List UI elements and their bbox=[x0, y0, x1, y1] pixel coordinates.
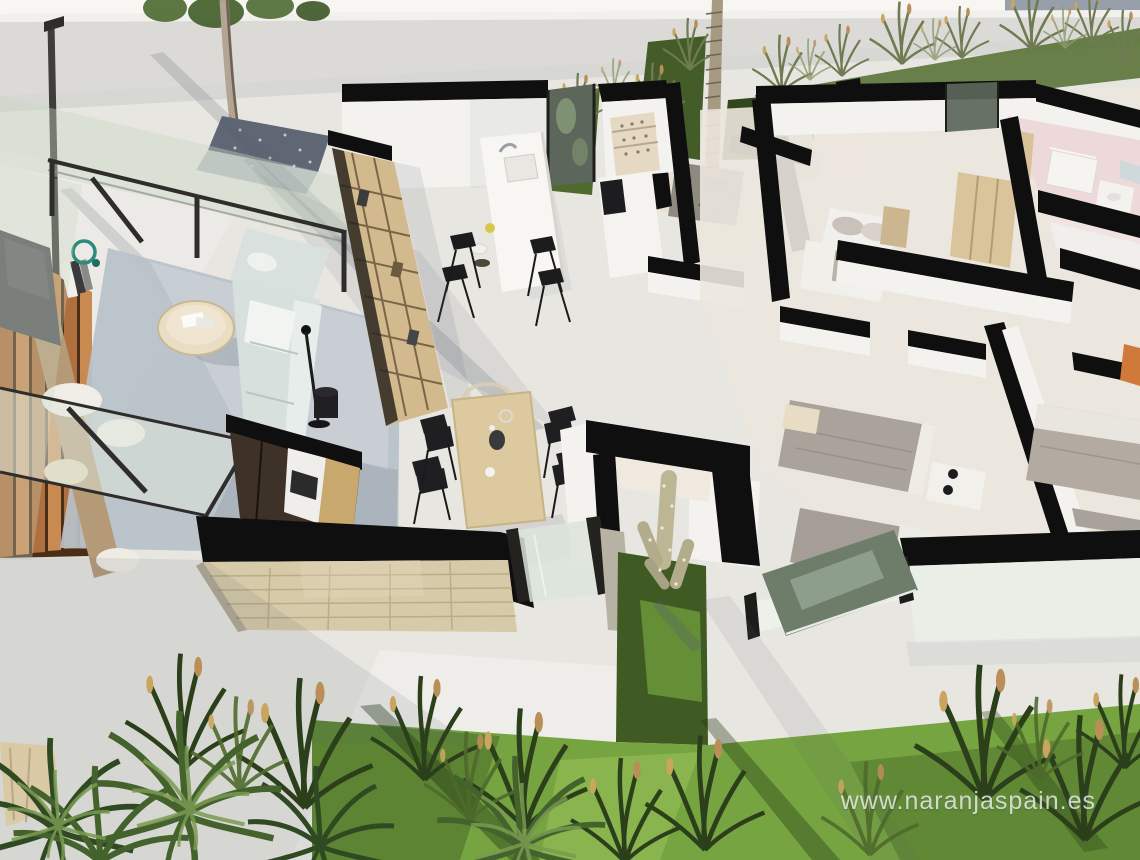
watermark: www.naranjaspain.es bbox=[841, 787, 1096, 816]
glass-slider bbox=[548, 84, 594, 186]
patio-slider-glass bbox=[518, 520, 600, 602]
dresser bbox=[800, 240, 836, 294]
kitchen-shelves bbox=[610, 112, 660, 176]
floorplan-3d-render: www.naranjaspain.es bbox=[0, 0, 1140, 860]
dining-table bbox=[452, 392, 545, 528]
bedroom-window bbox=[946, 82, 998, 132]
cooktop bbox=[600, 179, 626, 215]
wardrobe bbox=[950, 172, 1018, 268]
render-canvas bbox=[0, 0, 1140, 860]
sink bbox=[504, 154, 538, 182]
vase bbox=[489, 430, 505, 450]
